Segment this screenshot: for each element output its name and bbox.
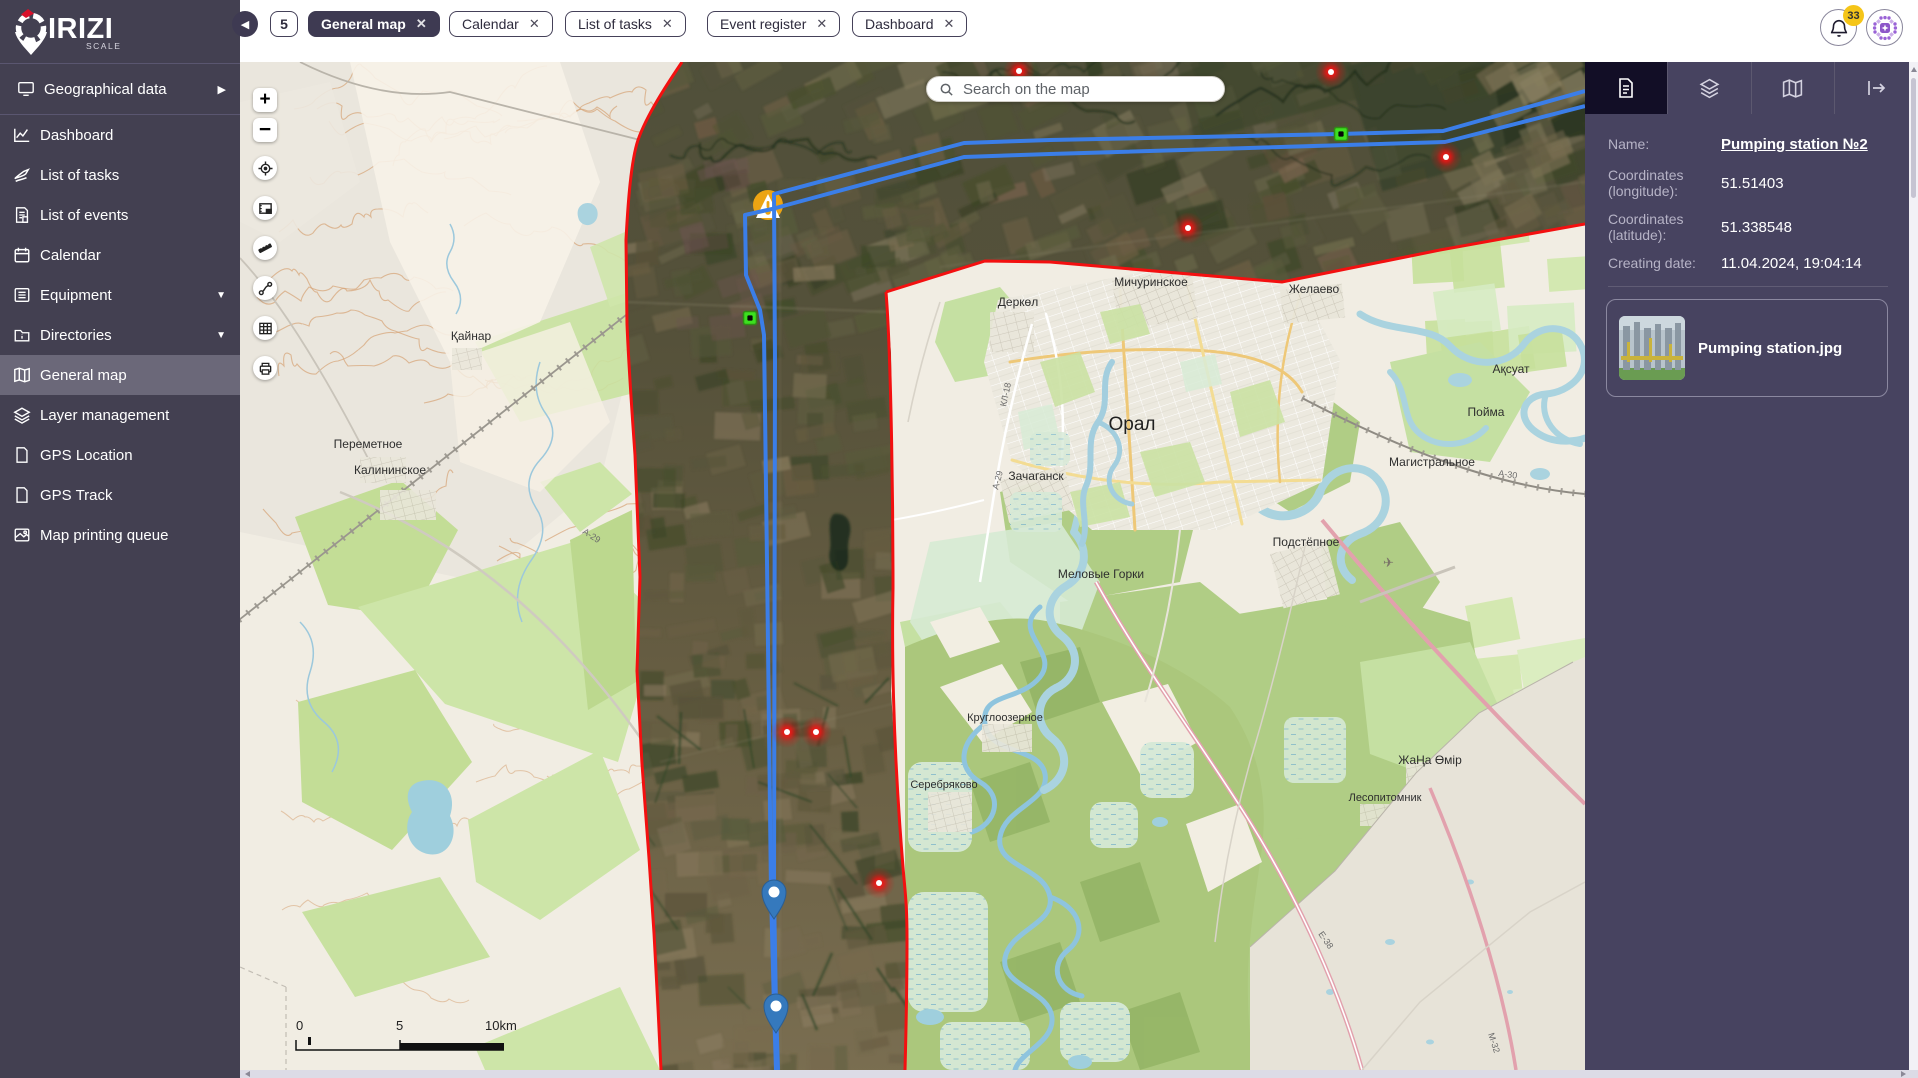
svg-text:Серебряково: Серебряково [910,779,977,791]
svg-text:Подстёпное: Подстёпное [1273,535,1340,549]
svg-text:0: 0 [296,1018,303,1033]
svg-text:Меловые Горки: Меловые Горки [1058,567,1144,581]
svg-text:Лесопитомник: Лесопитомник [1349,792,1422,804]
svg-text:Деркөл: Деркөл [998,295,1038,309]
svg-text:Желаево: Желаево [1289,282,1340,296]
svg-text:5: 5 [396,1018,403,1033]
svg-text:Магистральное: Магистральное [1389,455,1475,469]
svg-text:ЖаҢа Өмір: ЖаҢа Өмір [1398,753,1462,767]
svg-text:Круглоозерное: Круглоозерное [967,712,1043,724]
svg-text:Переметное: Переметное [334,437,403,451]
svg-text:Пойма: Пойма [1468,405,1505,419]
svg-text:✈: ✈ [1383,555,1394,570]
svg-text:Зачаганск: Зачаганск [1008,469,1064,483]
svg-text:Калининское: Калининское [354,463,426,477]
svg-text:Мичуринское: Мичуринское [1114,275,1188,289]
svg-text:Ақсуат: Ақсуат [1492,362,1530,376]
svg-text:Орал: Орал [1109,414,1156,435]
svg-text:10km: 10km [485,1018,517,1033]
svg-text:SCALE: SCALE [86,41,121,51]
svg-text:Қайнар: Қайнар [451,329,492,343]
